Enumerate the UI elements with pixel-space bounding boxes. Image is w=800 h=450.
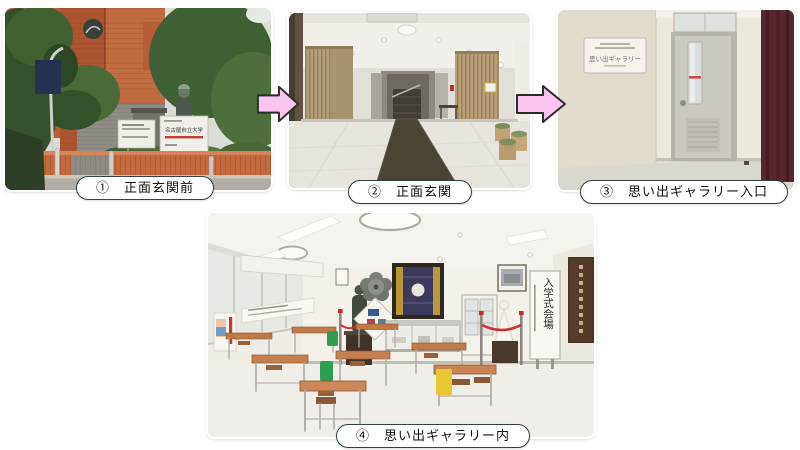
- photo-gallery-interior: 入学式会場: [208, 213, 594, 437]
- framed-artwork: [392, 263, 444, 319]
- left-wall: [558, 10, 656, 190]
- green-bag: [327, 331, 338, 346]
- photo-gallery-entrance: 思い出ギャラリー: [558, 10, 794, 190]
- gallery-door: [671, 32, 737, 160]
- caption-gallery-interior: ④ 思い出ギャラリー内: [336, 424, 530, 448]
- wall-panel: [371, 73, 382, 119]
- door-vent: [686, 118, 720, 152]
- pillar-notice-sign: [485, 83, 496, 92]
- photo-entrance-lobby: [289, 13, 530, 188]
- scene-gallery-interior: 入学式会場: [208, 213, 594, 437]
- flow-arrow-1: [256, 83, 300, 127]
- ceremony-sign-text: 入学式会場: [542, 277, 554, 330]
- scene-gallery-entrance: 思い出ギャラリー: [558, 10, 794, 190]
- right-arrow-icon: [258, 87, 298, 121]
- banner-sign: [35, 60, 61, 94]
- ceremony-sign: 入学式会場: [530, 271, 560, 369]
- crest-emblem-icon: [83, 19, 103, 39]
- framed-photo: [498, 265, 526, 291]
- glass-cabinet: [462, 295, 497, 355]
- green-bag: [320, 361, 333, 381]
- transom-window: [674, 13, 736, 32]
- caption-front-entrance-exterior: ① 正面玄関前: [76, 176, 214, 200]
- door-knob: [680, 100, 686, 106]
- door-sticker: [689, 76, 701, 79]
- flow-arrow-2: [515, 83, 567, 127]
- wooden-plaque: [568, 257, 594, 343]
- gallery-signboard: 思い出ギャラリー: [584, 38, 646, 73]
- caption-gallery-entrance: ③ 思い出ギャラリー入口: [580, 180, 788, 204]
- caption-front-entrance: ② 正面玄関: [348, 180, 472, 204]
- fire-hydrant-mark: [450, 85, 454, 91]
- door-stopper: [744, 161, 749, 165]
- dark-curtain: [761, 10, 794, 182]
- slide-canvas: 名古屋市立大学: [0, 0, 800, 450]
- yellow-bag: [436, 369, 452, 395]
- gallery-sign-text: 思い出ギャラリー: [589, 54, 641, 63]
- scene-lobby: [289, 13, 530, 188]
- university-sign-text: 名古屋市立大学: [165, 126, 203, 134]
- scene-exterior: 名古屋市立大学: [5, 8, 271, 190]
- right-arrow-icon: [517, 86, 565, 122]
- photo-front-entrance-exterior: 名古屋市立大学: [5, 8, 271, 190]
- small-frame: [336, 269, 348, 285]
